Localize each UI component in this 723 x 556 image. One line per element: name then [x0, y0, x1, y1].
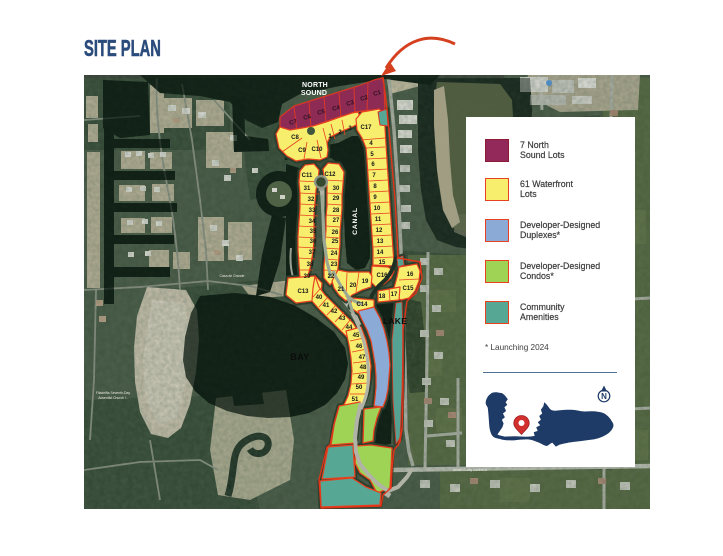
- svg-text:21: 21: [338, 287, 345, 293]
- svg-text:Adventist Church /..: Adventist Church /..: [98, 396, 128, 400]
- svg-text:C16: C16: [376, 273, 388, 279]
- svg-text:23: 23: [331, 262, 338, 268]
- svg-text:20: 20: [350, 283, 357, 289]
- svg-text:15: 15: [379, 260, 386, 266]
- svg-text:32: 32: [308, 197, 315, 203]
- svg-text:Casa de Grande: Casa de Grande: [220, 274, 245, 278]
- svg-text:LAKE: LAKE: [383, 316, 408, 326]
- svg-text:C12: C12: [324, 172, 336, 178]
- svg-text:C17: C17: [360, 125, 372, 131]
- svg-text:11: 11: [375, 217, 382, 223]
- svg-text:45: 45: [353, 333, 360, 339]
- svg-text:39: 39: [304, 274, 311, 280]
- svg-text:29: 29: [333, 196, 340, 202]
- svg-text:22: 22: [328, 274, 335, 280]
- svg-text:34: 34: [309, 219, 316, 225]
- svg-text:Filadelfia Seventh-Day: Filadelfia Seventh-Day: [96, 391, 130, 395]
- svg-text:12: 12: [376, 228, 383, 234]
- svg-text:41: 41: [323, 303, 330, 309]
- svg-text:CANAL: CANAL: [352, 207, 359, 235]
- svg-text:C11: C11: [302, 173, 313, 179]
- svg-text:25: 25: [332, 239, 339, 245]
- svg-text:SOUND: SOUND: [301, 90, 327, 97]
- svg-text:43: 43: [339, 316, 346, 322]
- svg-text:40: 40: [316, 295, 323, 301]
- svg-text:C8: C8: [291, 135, 299, 141]
- svg-text:16: 16: [407, 272, 414, 278]
- svg-text:Seven B-day Advent ct: Seven B-day Advent ct: [453, 468, 487, 472]
- svg-text:47: 47: [359, 355, 366, 361]
- svg-text:C15: C15: [402, 286, 414, 292]
- svg-text:BAY: BAY: [290, 352, 309, 362]
- svg-text:27: 27: [333, 218, 340, 224]
- svg-text:14: 14: [377, 250, 384, 256]
- svg-text:33: 33: [309, 208, 316, 214]
- svg-text:18: 18: [379, 294, 386, 300]
- svg-text:C13: C13: [297, 289, 309, 295]
- svg-text:NORTH: NORTH: [302, 82, 328, 89]
- svg-text:35: 35: [310, 229, 317, 235]
- svg-text:49: 49: [358, 375, 365, 381]
- svg-text:48: 48: [360, 365, 367, 371]
- svg-text:42: 42: [331, 309, 338, 315]
- svg-text:37: 37: [309, 250, 316, 256]
- svg-text:26: 26: [332, 230, 339, 236]
- svg-text:44: 44: [346, 325, 353, 331]
- svg-text:C14: C14: [356, 302, 368, 308]
- svg-text:10: 10: [374, 206, 381, 212]
- svg-text:C9: C9: [298, 148, 306, 154]
- svg-text:19: 19: [362, 279, 369, 285]
- svg-text:51: 51: [352, 397, 359, 403]
- svg-text:50: 50: [356, 385, 363, 391]
- svg-text:31: 31: [304, 186, 311, 192]
- svg-text:13: 13: [377, 239, 384, 245]
- svg-text:24: 24: [331, 251, 338, 257]
- svg-text:17: 17: [391, 292, 398, 298]
- svg-text:N: N: [601, 392, 607, 401]
- svg-text:46: 46: [356, 344, 363, 350]
- svg-text:36: 36: [310, 239, 317, 245]
- svg-text:38: 38: [307, 262, 314, 268]
- svg-text:30: 30: [333, 186, 340, 192]
- svg-text:28: 28: [333, 208, 340, 214]
- svg-text:C10: C10: [311, 147, 323, 153]
